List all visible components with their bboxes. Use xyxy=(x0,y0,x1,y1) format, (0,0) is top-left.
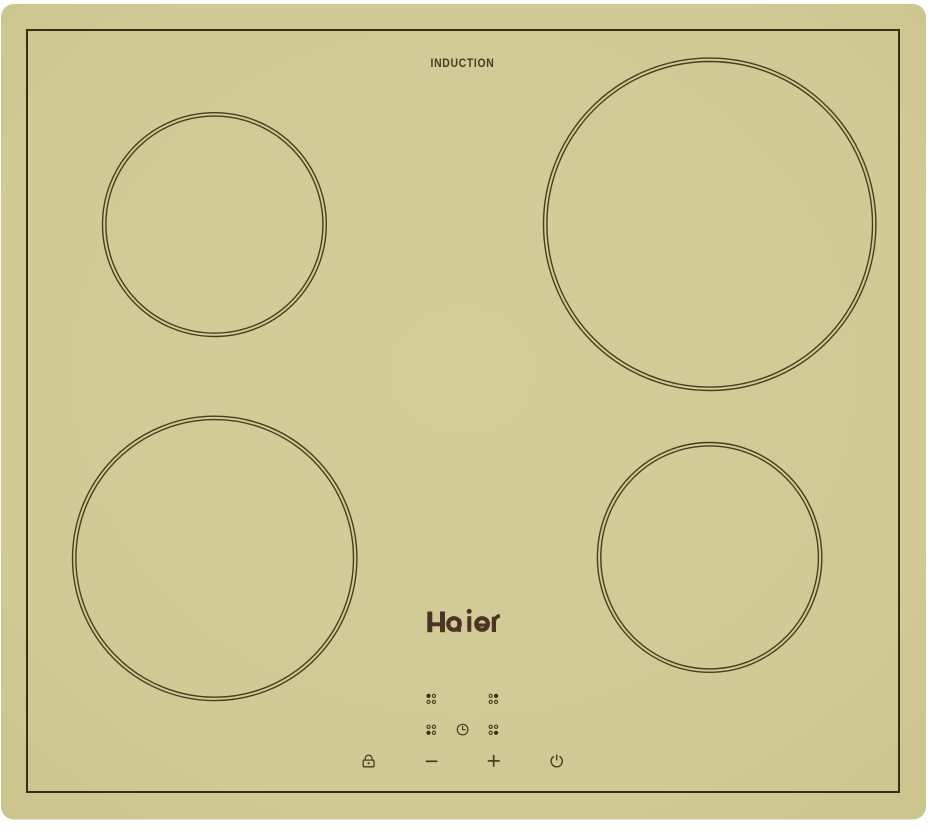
svg-text:INDUCTION: INDUCTION xyxy=(431,56,495,70)
